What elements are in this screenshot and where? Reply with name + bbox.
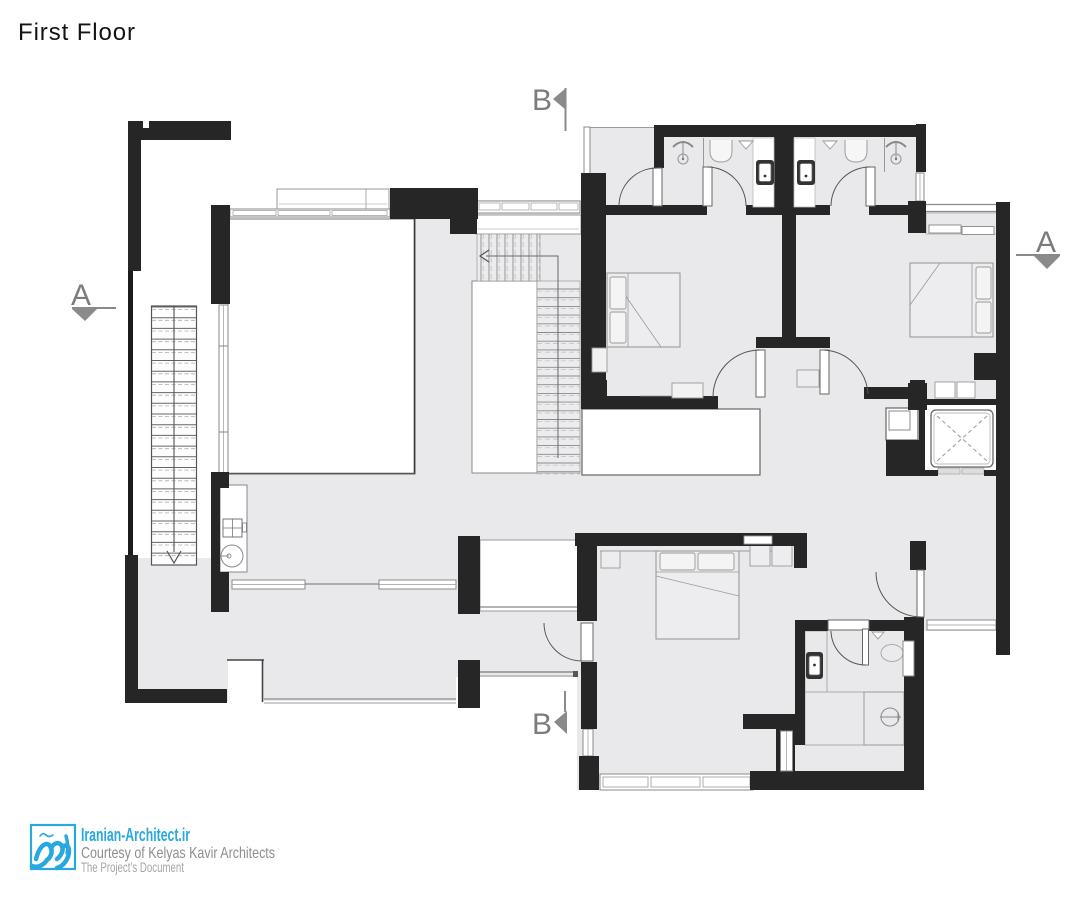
svg-text:B: B: [532, 708, 552, 741]
svg-text:First Floor: First Floor: [18, 19, 135, 46]
svg-text:The Project’s Document: The Project’s Document: [81, 859, 184, 875]
svg-text:B: B: [532, 84, 552, 117]
svg-text:Iranian-Architect.ir: Iranian-Architect.ir: [81, 825, 190, 845]
